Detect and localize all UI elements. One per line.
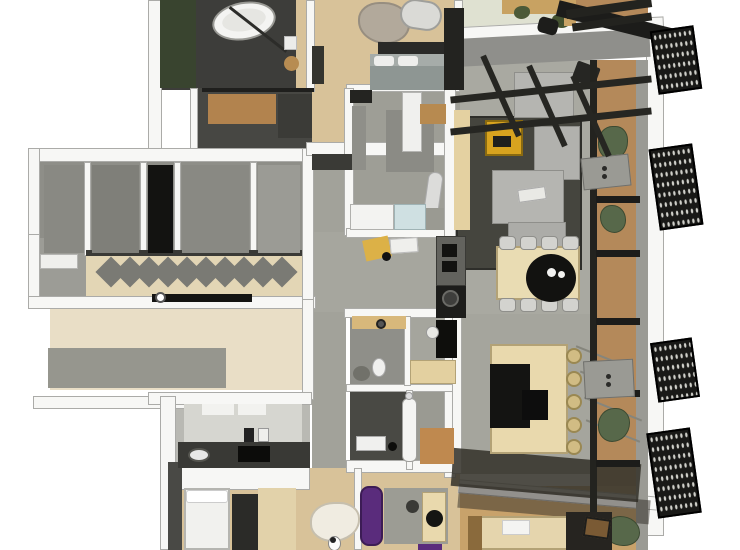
bath-tray — [284, 36, 297, 50]
bar-stool — [566, 417, 582, 433]
balcony-door-panel — [583, 359, 635, 400]
bl-bed-pillows — [186, 490, 228, 503]
purple-edge — [418, 544, 442, 550]
wall-closet-div-4 — [250, 162, 257, 256]
wall-vanity-left — [28, 234, 40, 304]
balcony-door-panel — [580, 154, 631, 191]
hall-bench — [390, 237, 419, 254]
canister-white — [258, 428, 269, 442]
pendant-dot-1 — [547, 268, 556, 277]
wall-shower-left — [190, 88, 198, 150]
floor-plan-render — [0, 0, 740, 550]
kitchenette-cooktop — [238, 446, 270, 462]
media-bench — [410, 360, 456, 384]
shower-bench — [278, 94, 312, 138]
bath2-floor — [350, 390, 408, 470]
closet-black-door — [148, 165, 173, 253]
balcony-plant — [600, 205, 626, 233]
wall-emptyroom-right — [302, 296, 314, 400]
dining-chair — [562, 236, 579, 250]
pendant-dot-2 — [558, 271, 565, 278]
bed-pillow-2 — [398, 56, 418, 66]
dining-chair — [541, 236, 558, 250]
deck-frame — [596, 460, 640, 467]
kitchenette-dark-wall — [168, 462, 182, 550]
bl-wardrobe — [232, 494, 258, 550]
pendant-lamp — [526, 254, 576, 302]
cbath-tub-white — [350, 204, 394, 230]
wc-mat — [353, 366, 370, 381]
wc-clock — [376, 319, 386, 329]
door-dot — [606, 382, 611, 387]
shower-grate — [208, 94, 276, 124]
shower-glass — [202, 88, 314, 92]
cbath-step — [426, 208, 444, 230]
kitchenette-cab-1 — [202, 404, 234, 415]
closet-cubby-2 — [92, 165, 139, 253]
wall-counter-front — [176, 466, 310, 490]
dining-chair — [499, 236, 516, 250]
door-dot — [606, 374, 611, 379]
bar-stool — [566, 439, 582, 455]
dining-chair — [562, 298, 579, 312]
br-bed-head — [468, 516, 482, 550]
stool-dark — [406, 500, 419, 513]
dog-spot — [330, 537, 336, 543]
bedroom-dresser — [312, 46, 324, 84]
sauna-slats — [420, 428, 454, 464]
bl-closet — [258, 488, 296, 550]
island-cooktop — [522, 390, 548, 420]
wall-closet-div-3 — [174, 162, 181, 256]
cbath-bench — [420, 104, 446, 124]
media-round — [426, 326, 439, 339]
kitchenette-cab-2 — [238, 404, 266, 415]
wall-hall-left — [302, 148, 314, 300]
hall-low-floor — [312, 312, 346, 472]
wall-baths-mid — [346, 384, 458, 392]
bedroom-wardrobe-dark — [444, 8, 464, 90]
br-bed-pillow — [502, 520, 530, 535]
toilet — [372, 358, 386, 377]
bed-pillow-1 — [374, 56, 394, 66]
deck-frame — [596, 318, 640, 325]
canister-dark — [244, 428, 254, 442]
closet-cubby-1 — [44, 165, 84, 253]
tall-unit-oven-2 — [442, 261, 457, 272]
closet-rail-circle — [155, 292, 166, 303]
desk-chair — [426, 510, 443, 527]
bath2-vanity — [356, 436, 386, 451]
wall-closet-div-1 — [84, 162, 91, 256]
br-frames — [583, 516, 612, 539]
cbath-dark-item — [350, 90, 372, 103]
deck-frame — [596, 196, 640, 203]
wall-leftwing-top — [28, 148, 316, 162]
closet-cubby-4 — [258, 165, 300, 253]
emptyroom-wall-face — [48, 348, 226, 388]
cbath-cabinet — [402, 92, 422, 152]
plant-wall — [160, 0, 196, 88]
deck-frame — [596, 250, 640, 257]
vanity-desk — [40, 254, 78, 269]
hall-dark-dot — [382, 252, 391, 261]
coffee-table-items — [493, 136, 511, 147]
dining-chair — [499, 298, 516, 312]
perforated-screen — [650, 25, 702, 95]
door-dot — [602, 174, 607, 179]
door-dot — [602, 166, 607, 171]
wall-closet-div-2 — [140, 162, 147, 256]
bath-stool — [284, 56, 299, 71]
closet-rail — [152, 294, 252, 302]
speaker-circle — [442, 290, 459, 307]
purple-chaise — [360, 486, 383, 546]
bar-stool — [566, 348, 582, 364]
bar-stool — [566, 394, 582, 410]
media-tv — [436, 320, 457, 358]
study-desk — [502, 0, 564, 14]
bar-stool — [566, 371, 582, 387]
kitchenette-sink — [188, 448, 210, 462]
radiator — [402, 398, 417, 462]
radiator-knob — [405, 392, 413, 400]
tall-unit-oven-1 — [442, 244, 457, 257]
perforated-screen — [650, 337, 700, 402]
bath2-fixture — [388, 442, 397, 451]
bed-blanket — [370, 66, 444, 90]
dining-chair — [520, 298, 537, 312]
closet-cubby-3 — [182, 165, 249, 253]
hall-dark-band — [312, 154, 354, 170]
dining-chair — [520, 236, 537, 250]
cbath-tub-blue — [394, 204, 426, 230]
cbath-vanity — [352, 106, 366, 170]
